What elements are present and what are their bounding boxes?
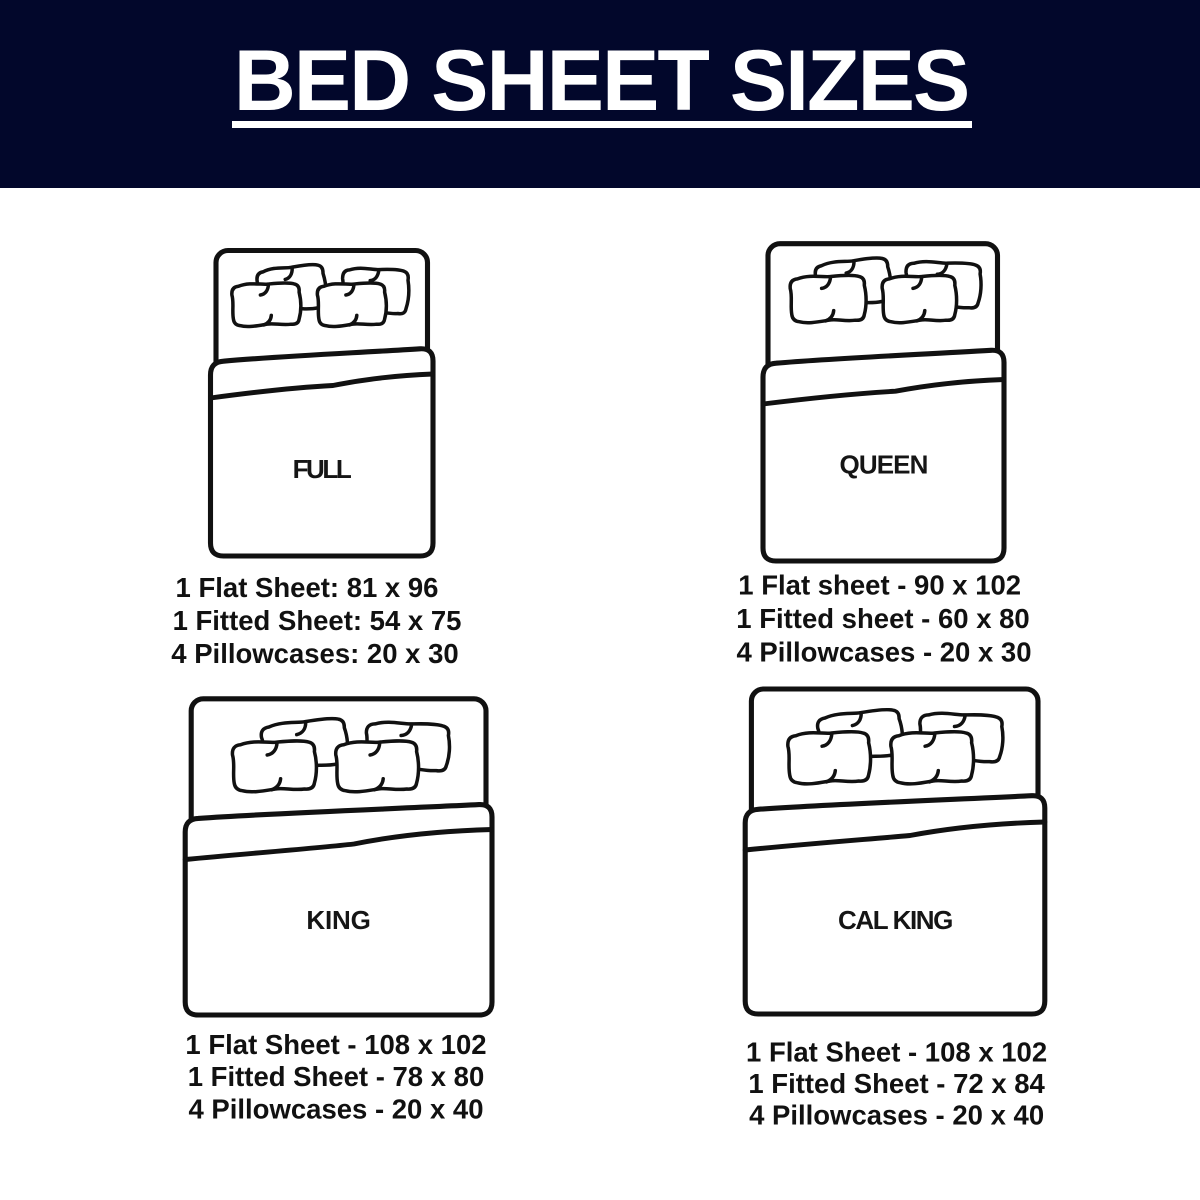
svg-text:1 Flat Sheet - 108 x 102: 1 Flat Sheet - 108 x 102 [746, 1036, 1047, 1067]
svg-text:1 Flat Sheet - 108 x 102: 1 Flat Sheet - 108 x 102 [185, 1029, 486, 1060]
svg-text:1 Fitted Sheet - 72 x 84: 1 Fitted Sheet - 72 x 84 [748, 1068, 1045, 1099]
svg-text:4 Pillowcases: 20 x 30: 4 Pillowcases: 20 x 30 [171, 638, 458, 669]
svg-text:1 Fitted Sheet: 54 x 75: 1 Fitted Sheet: 54 x 75 [173, 605, 462, 636]
svg-text:KING: KING [306, 905, 370, 935]
svg-text:BED SHEET SIZES: BED SHEET SIZES [234, 33, 969, 129]
svg-text:1 Fitted sheet - 60 x 80: 1 Fitted sheet - 60 x 80 [736, 603, 1029, 634]
svg-text:1 Fitted Sheet - 78 x 80: 1 Fitted Sheet - 78 x 80 [188, 1061, 485, 1092]
svg-text:FULL: FULL [293, 454, 352, 484]
svg-text:CAL KING: CAL KING [838, 905, 952, 935]
svg-text:4 Pillowcases - 20 x 40: 4 Pillowcases - 20 x 40 [188, 1094, 483, 1125]
svg-text:QUEEN: QUEEN [840, 450, 928, 480]
svg-text:1 Flat Sheet: 81 x 96: 1 Flat Sheet: 81 x 96 [176, 572, 439, 603]
svg-text:4 Pillowcases - 20 x 30: 4 Pillowcases - 20 x 30 [736, 637, 1031, 668]
svg-text:1 Flat sheet - 90 x 102: 1 Flat sheet - 90 x 102 [738, 570, 1021, 601]
svg-text:4 Pillowcases - 20 x 40: 4 Pillowcases - 20 x 40 [749, 1100, 1044, 1131]
